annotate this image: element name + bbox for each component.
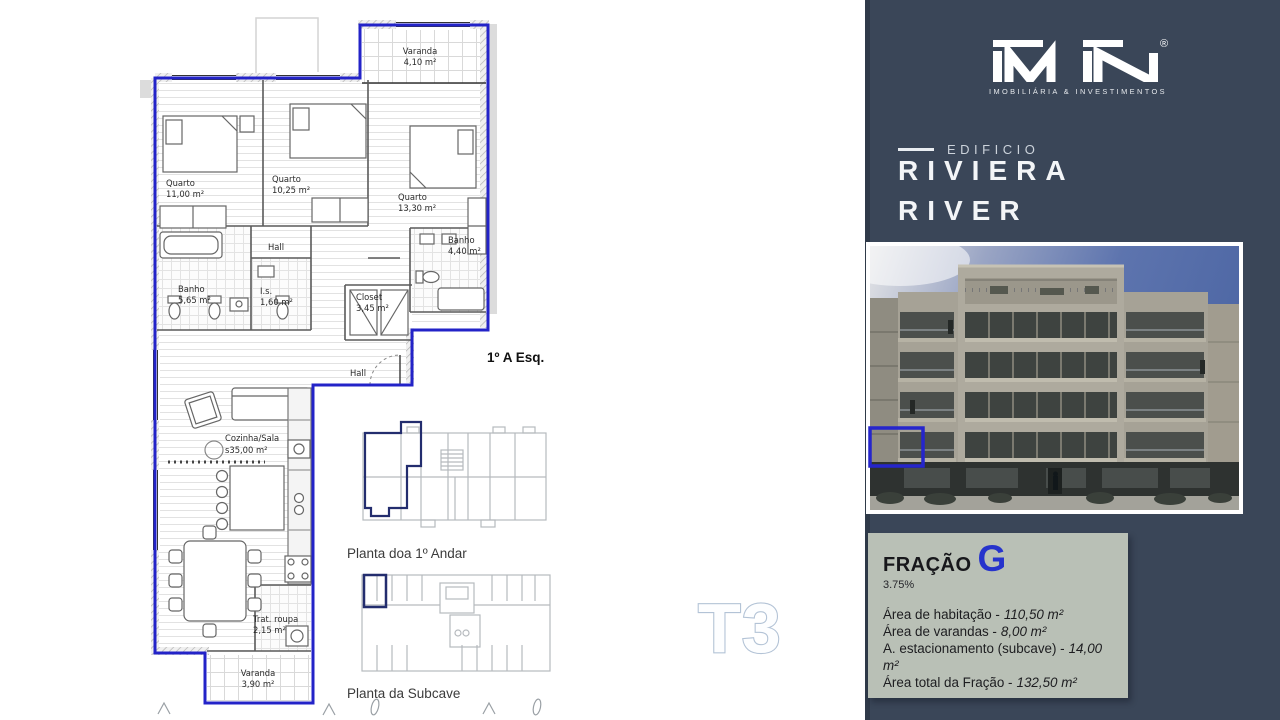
imn-logo-icon: [993, 40, 1159, 82]
fraction-label: FRAÇÃO: [883, 554, 972, 577]
dash-icon: [898, 148, 934, 151]
highlighted-parking-outline: [364, 575, 386, 607]
brand-panel: ® IMOBILIÁRIA & INVESTIMENTOS EDIFICIO R…: [865, 0, 1280, 720]
room-label-trat-roupa: Trat. roupa: [252, 614, 298, 624]
highlighted-unit-outline: [365, 422, 421, 516]
room-label-hall-2: Hall: [350, 368, 366, 378]
svg-text:3,90 m²: 3,90 m²: [242, 679, 275, 689]
area-estacionamento-label: A. estacionamento (subcave) -: [883, 641, 1065, 656]
area-total-value: 132,50 m²: [1017, 675, 1077, 690]
fraction-card: FRAÇÃO G 3.75% Área de habitação -110,50…: [868, 533, 1128, 698]
mini-plan-subcave: [362, 575, 550, 671]
brochure-page: Varanda 4,10 m² Quarto 11,00 m² Quarto 1…: [0, 0, 1280, 720]
area-total-row: Área total da Fração -132,50 m²: [883, 674, 1118, 691]
svg-text:11,00 m²: 11,00 m²: [166, 189, 204, 199]
building-name-line2: RIVER: [898, 195, 1029, 227]
area-total-label: Área total da Fração -: [883, 675, 1013, 690]
building-name-line1: RIVIERA: [898, 155, 1075, 187]
svg-text:10,25 m²: 10,25 m²: [272, 185, 310, 195]
room-label-hall-1: Hall: [268, 242, 284, 252]
area-varandas-label: Área de varandas -: [883, 624, 997, 639]
room-label-is: I.s.: [260, 286, 272, 296]
area-habitacao-row: Área de habitação -110,50 m²: [883, 606, 1118, 623]
room-label-quarto-3: Quarto: [398, 192, 427, 202]
area-habitacao-label: Área de habitação -: [883, 607, 1000, 622]
svg-text:s35,00 m²: s35,00 m²: [225, 445, 268, 455]
svg-text:4,40 m²: 4,40 m²: [448, 246, 481, 256]
building-render-photo: [866, 242, 1243, 514]
svg-text:13,30 m²: 13,30 m²: [398, 203, 436, 213]
building-render-graphic: [866, 242, 1243, 514]
area-varandas-value: 8,00 m²: [1001, 624, 1046, 639]
typology-watermark: T3: [698, 589, 782, 667]
room-label-cozinha: Cozinha/Sala: [225, 433, 279, 443]
registered-trademark: ®: [1160, 38, 1168, 50]
room-label-closet: Closet: [356, 292, 383, 302]
fraction-title: FRAÇÃO G: [883, 545, 1118, 577]
mini-plan-1-caption: Planta doa 1º Andar: [347, 546, 467, 561]
svg-text:5,65 m²: 5,65 m²: [178, 295, 211, 305]
brand-tagline: IMOBILIÁRIA & INVESTIMENTOS: [989, 87, 1163, 96]
floor-plan-graphic: Varanda 4,10 m² Quarto 11,00 m² Quarto 1…: [0, 0, 868, 720]
svg-text:2,15 m²: 2,15 m²: [253, 625, 286, 635]
room-label-banho-440: Banho: [448, 235, 475, 245]
svg-text:4,10 m²: 4,10 m²: [404, 57, 437, 67]
room-label-varanda-bottom: Varanda: [241, 668, 276, 678]
fraction-letter: G: [978, 545, 1007, 573]
mini-plan-2-caption: Planta da Subcave: [347, 686, 460, 701]
company-logo: [993, 40, 1159, 82]
room-label-quarto-2: Quarto: [272, 174, 301, 184]
fraction-areas: Área de habitação -110,50 m² Área de var…: [883, 606, 1118, 691]
unit-label: 1º A Esq.: [487, 350, 544, 365]
area-estacionamento-row: A. estacionamento (subcave) -14,00 m²: [883, 640, 1118, 674]
fraction-percentage: 3.75%: [883, 579, 1118, 591]
svg-text:3,45 m²: 3,45 m²: [356, 303, 389, 313]
room-label-banho-565: Banho: [178, 284, 205, 294]
area-varandas-row: Área de varandas -8,00 m²: [883, 623, 1118, 640]
room-label-quarto-1: Quarto: [166, 178, 195, 188]
area-habitacao-value: 110,50 m²: [1004, 607, 1063, 622]
svg-text:1,60 m²: 1,60 m²: [260, 297, 293, 307]
mini-plan-first-floor: [363, 422, 546, 527]
room-label-varanda-top: Varanda: [403, 46, 438, 56]
